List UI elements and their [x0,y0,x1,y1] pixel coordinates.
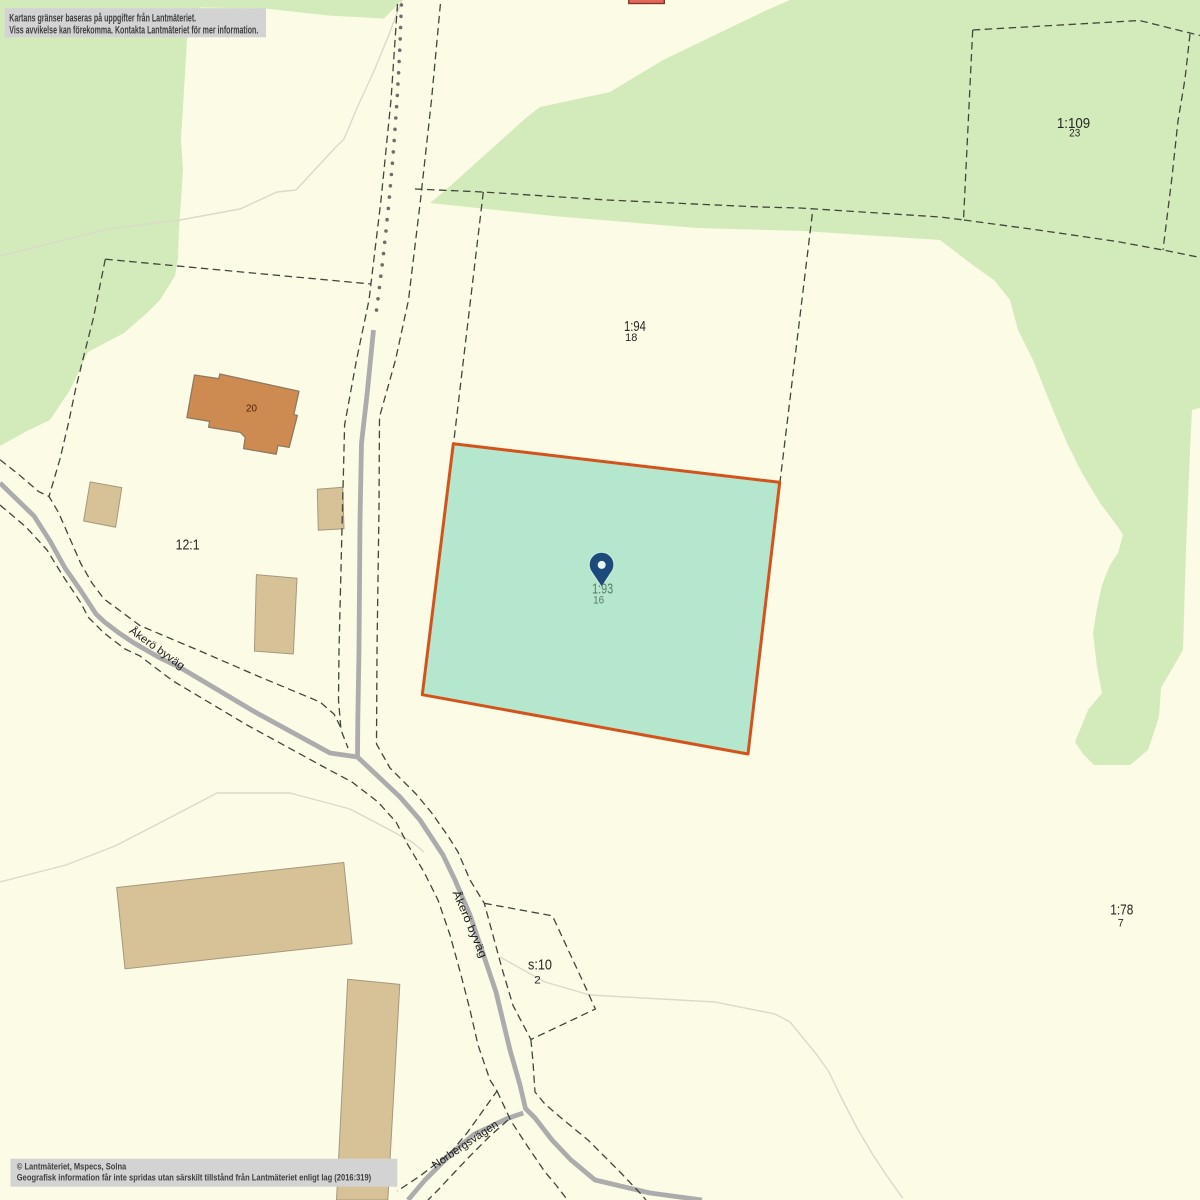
svg-text:2: 2 [534,975,541,987]
svg-text:Viss avvikelse kan förekomma.: Viss avvikelse kan förekomma. Kontakta L… [9,24,258,36]
svg-text:Kartans gränser baseras på upp: Kartans gränser baseras på uppgifter frå… [9,12,196,24]
svg-text:Geografisk information får int: Geografisk information får inte spridas … [17,1172,372,1183]
svg-text:16: 16 [593,595,604,607]
svg-text:© Lantmäteriet, Mspecs, Solna: © Lantmäteriet, Mspecs, Solna [17,1161,127,1172]
svg-text:12:1: 12:1 [176,538,200,554]
svg-text:1:78: 1:78 [1110,903,1133,919]
svg-text:23: 23 [1069,127,1080,139]
svg-text:18: 18 [625,332,637,344]
svg-text:20: 20 [246,404,257,415]
svg-text:7: 7 [1118,918,1124,930]
svg-text:s:10: s:10 [528,958,552,974]
